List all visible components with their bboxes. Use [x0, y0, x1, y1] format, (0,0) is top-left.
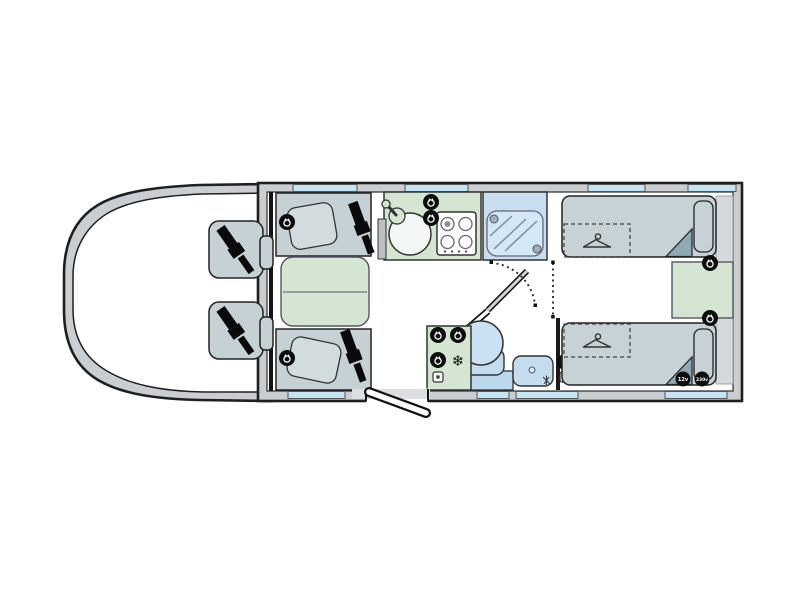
socket-outlet-icon [433, 372, 443, 382]
mains-socket-icon [430, 327, 446, 343]
lounge-table [281, 257, 369, 326]
cab-body [64, 184, 272, 401]
between-bed-chest [672, 262, 733, 318]
motorhome-floorplan-canvas: ❄ 12v 230v [0, 0, 800, 600]
socket-12v-badge: 12v [676, 372, 691, 387]
fridge-freezer-cabinet: ❄ [427, 326, 471, 390]
window-icon [288, 392, 345, 399]
motorhome-floorplan: ❄ 12v 230v [0, 0, 800, 600]
mains-socket-icon [279, 350, 295, 366]
single-bed-offside [562, 196, 716, 257]
mains-socket-icon [423, 210, 439, 226]
socket-12v-label: 12v [678, 377, 689, 383]
window-icon [665, 392, 727, 399]
counter-end-panel [378, 219, 386, 259]
shower-head-icon [533, 245, 541, 253]
mains-socket-icon [702, 310, 718, 326]
drain [529, 367, 535, 373]
mains-socket-icon [279, 214, 295, 230]
snowflake-icon: ❄ [452, 352, 465, 370]
window-icon [405, 185, 468, 192]
cab-seat-passenger [209, 302, 273, 359]
shower-cubicle [483, 192, 547, 260]
single-bed-nearside [562, 323, 716, 385]
cab-bulkhead-wall [269, 192, 273, 391]
shower-head-icon [490, 215, 498, 223]
headrest [260, 317, 273, 350]
mains-socket-icon [702, 255, 718, 271]
cab-seat-driver [209, 221, 273, 278]
kitchen-hob-4-burner [437, 212, 476, 255]
window-icon [516, 392, 578, 399]
washbasin [513, 356, 553, 386]
lounge-bench-rear [276, 328, 371, 390]
socket-230v-badge: 230v [695, 372, 710, 387]
socket-230v-label: 230v [696, 377, 708, 383]
mains-socket-icon [430, 352, 446, 368]
mains-socket-icon [423, 194, 439, 210]
kitchen-worktop [378, 192, 481, 260]
window-icon [588, 185, 645, 192]
window-icon [293, 185, 357, 192]
lounge-bench-front [276, 193, 378, 256]
headrest [260, 236, 273, 269]
window-icon [477, 392, 509, 399]
window-icon [688, 185, 736, 192]
pillow [694, 201, 713, 252]
mains-socket-icon [450, 327, 466, 343]
